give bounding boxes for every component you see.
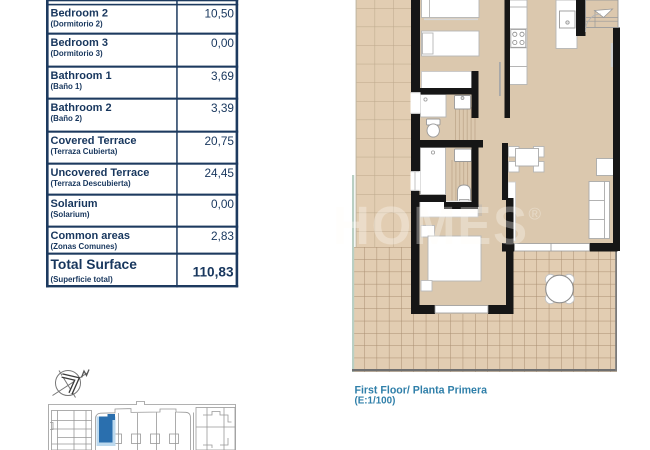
svg-text:2,83: 2,83 (211, 229, 234, 243)
svg-text:(Dormitorio 2): (Dormitorio 2) (51, 20, 104, 29)
svg-text:Bathroom 1: Bathroom 1 (51, 70, 112, 82)
svg-text:3,69: 3,69 (211, 69, 234, 83)
svg-text:24,45: 24,45 (204, 166, 234, 180)
svg-text:(E:1/100): (E:1/100) (355, 395, 396, 406)
svg-text:(Terraza Cubierta): (Terraza Cubierta) (51, 147, 118, 156)
svg-text:(Solarium): (Solarium) (51, 210, 90, 219)
svg-text:(Zonas Comunes): (Zonas Comunes) (51, 242, 118, 251)
svg-text:0,00: 0,00 (211, 36, 234, 50)
svg-text:110,83: 110,83 (193, 265, 234, 280)
svg-text:Bedroom 3: Bedroom 3 (51, 37, 108, 49)
svg-text:Uncovered Terrace: Uncovered Terrace (51, 167, 150, 179)
svg-text:(Baño 1): (Baño 1) (51, 82, 83, 91)
svg-text:Common areas: Common areas (51, 230, 130, 242)
svg-text:(Terraza Descubierta): (Terraza Descubierta) (51, 179, 131, 188)
svg-text:(Baño 2): (Baño 2) (51, 114, 83, 123)
svg-text:Bathroom 2: Bathroom 2 (51, 102, 112, 114)
svg-text:(Dormitorio 3): (Dormitorio 3) (51, 49, 104, 58)
svg-text:Solarium: Solarium (51, 198, 98, 210)
svg-text:20,75: 20,75 (204, 134, 234, 148)
svg-text:10,50: 10,50 (204, 6, 234, 20)
svg-text:Total Surface: Total Surface (51, 257, 138, 272)
svg-text:Covered Terrace: Covered Terrace (51, 135, 137, 147)
svg-text:0,00: 0,00 (211, 197, 234, 211)
svg-text:3,39: 3,39 (211, 101, 234, 115)
svg-text:Bedroom 2: Bedroom 2 (51, 8, 108, 20)
svg-text:®: ® (529, 205, 542, 224)
svg-text:HOMES: HOMES (333, 196, 529, 256)
svg-text:(Superficie total): (Superficie total) (51, 275, 114, 284)
